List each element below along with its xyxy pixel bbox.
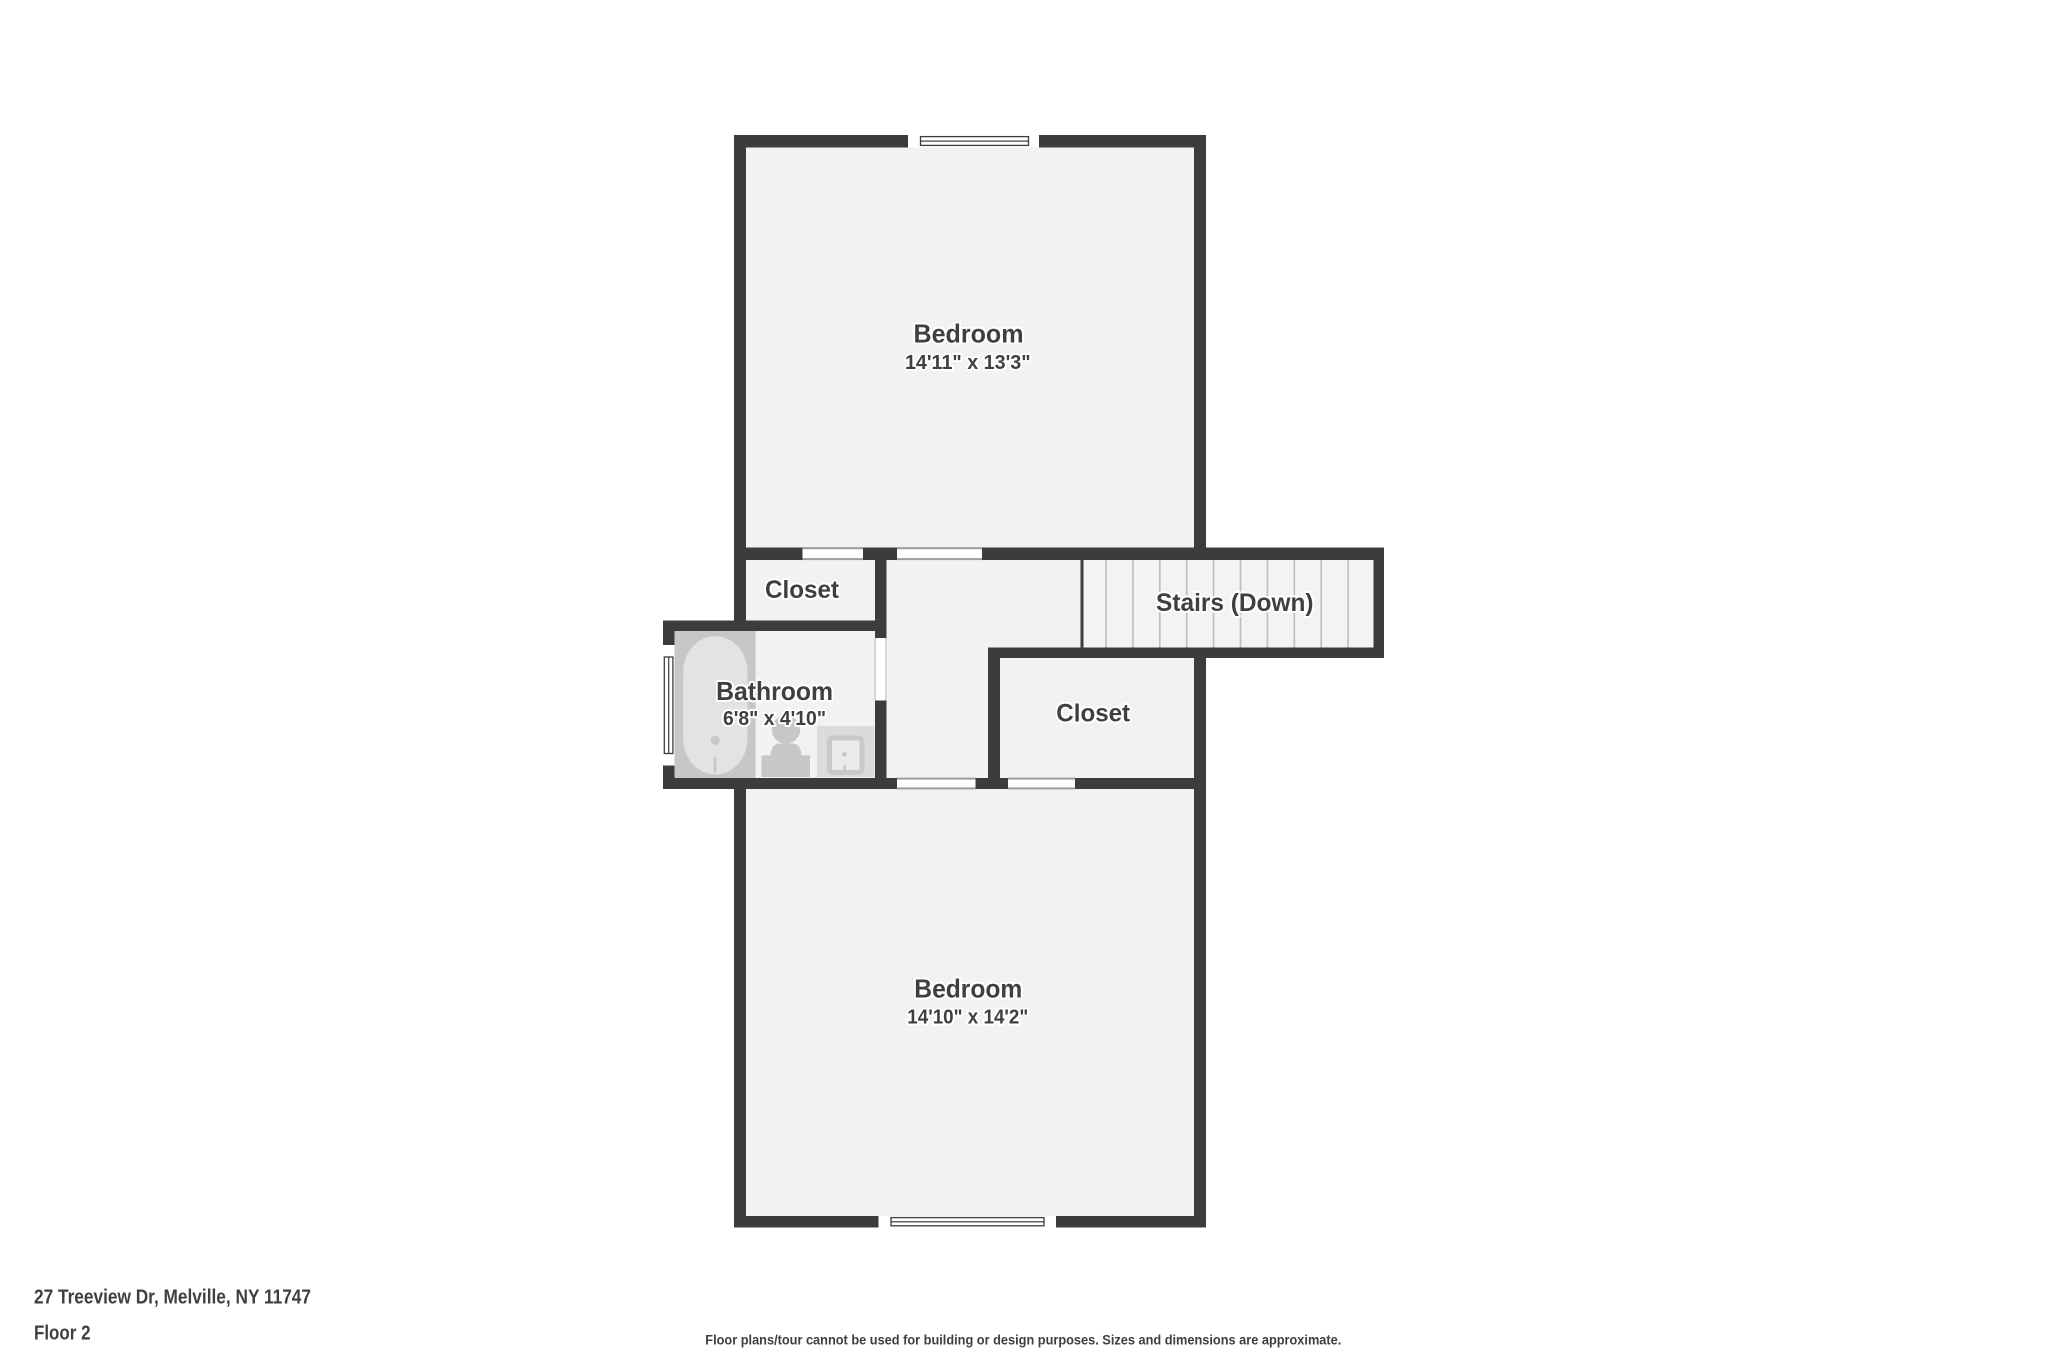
svg-text:Floor plans/tour cannot be use: Floor plans/tour cannot be used for buil…: [705, 1332, 1341, 1348]
svg-text:Bathroom: Bathroom: [716, 676, 833, 706]
svg-text:Floor 2: Floor 2: [34, 1323, 91, 1345]
svg-text:Bedroom: Bedroom: [914, 319, 1024, 349]
svg-text:14'10" x 14'2": 14'10" x 14'2": [907, 1007, 1028, 1029]
svg-text:14'11" x 13'3": 14'11" x 13'3": [905, 352, 1031, 374]
svg-text:27 Treeview Dr, Melville, NY 1: 27 Treeview Dr, Melville, NY 11747: [34, 1287, 311, 1309]
svg-text:Bedroom: Bedroom: [914, 974, 1022, 1004]
svg-text:Closet: Closet: [1056, 700, 1130, 728]
svg-text:Closet: Closet: [765, 576, 840, 604]
svg-text:Stairs (Down): Stairs (Down): [1156, 589, 1314, 617]
svg-text:6'8" x 4'10": 6'8" x 4'10": [723, 708, 826, 730]
